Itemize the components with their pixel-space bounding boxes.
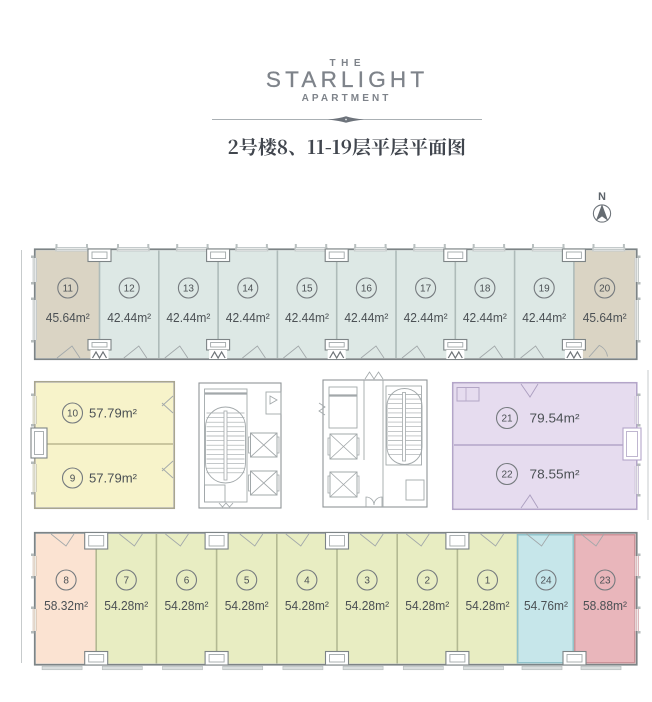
svg-text:54.28m²: 54.28m²	[405, 598, 450, 613]
svg-text:7: 7	[124, 576, 130, 587]
svg-text:54.76m²: 54.76m²	[524, 598, 569, 613]
svg-text:4: 4	[304, 576, 310, 587]
svg-text:5: 5	[244, 576, 250, 587]
svg-text:78.55m²: 78.55m²	[530, 467, 581, 482]
svg-text:54.28m²: 54.28m²	[466, 598, 511, 613]
svg-text:6: 6	[184, 576, 190, 587]
svg-text:45.64m²: 45.64m²	[583, 310, 628, 325]
svg-text:54.28m²: 54.28m²	[285, 598, 330, 613]
svg-text:57.79m²: 57.79m²	[89, 406, 138, 421]
svg-text:11: 11	[63, 284, 74, 295]
svg-text:16: 16	[361, 284, 373, 295]
svg-text:42.44m²: 42.44m²	[344, 310, 389, 325]
svg-text:42.44m²: 42.44m²	[463, 310, 508, 325]
svg-text:54.28m²: 54.28m²	[225, 598, 270, 613]
svg-text:14: 14	[242, 284, 254, 295]
svg-text:3: 3	[364, 576, 370, 587]
svg-text:54.28m²: 54.28m²	[165, 598, 210, 613]
svg-text:1: 1	[485, 576, 491, 587]
svg-text:42.44m²: 42.44m²	[107, 310, 152, 325]
svg-text:13: 13	[183, 284, 195, 295]
svg-text:23: 23	[599, 576, 611, 587]
svg-text:42.44m²: 42.44m²	[285, 310, 330, 325]
svg-text:79.54m²: 79.54m²	[530, 411, 581, 426]
svg-text:22: 22	[501, 470, 513, 481]
svg-text:21: 21	[501, 414, 513, 425]
svg-text:24: 24	[540, 576, 552, 587]
svg-text:12: 12	[124, 284, 136, 295]
svg-text:42.44m²: 42.44m²	[404, 310, 449, 325]
svg-text:42.44m²: 42.44m²	[522, 310, 567, 325]
svg-text:9: 9	[70, 474, 76, 485]
svg-text:58.32m²: 58.32m²	[44, 598, 89, 613]
svg-text:58.88m²: 58.88m²	[583, 598, 628, 613]
svg-text:42.44m²: 42.44m²	[226, 310, 271, 325]
svg-text:57.79m²: 57.79m²	[89, 471, 138, 486]
svg-text:17: 17	[420, 284, 432, 295]
svg-text:15: 15	[301, 284, 313, 295]
svg-text:8: 8	[63, 576, 69, 587]
svg-text:42.44m²: 42.44m²	[166, 310, 211, 325]
svg-text:45.64m²: 45.64m²	[46, 310, 91, 325]
svg-text:2: 2	[425, 576, 431, 587]
svg-text:10: 10	[67, 409, 79, 420]
svg-text:54.28m²: 54.28m²	[345, 598, 390, 613]
svg-text:19: 19	[539, 284, 551, 295]
svg-text:54.28m²: 54.28m²	[104, 598, 149, 613]
svg-text:18: 18	[479, 284, 491, 295]
svg-text:20: 20	[599, 284, 611, 295]
